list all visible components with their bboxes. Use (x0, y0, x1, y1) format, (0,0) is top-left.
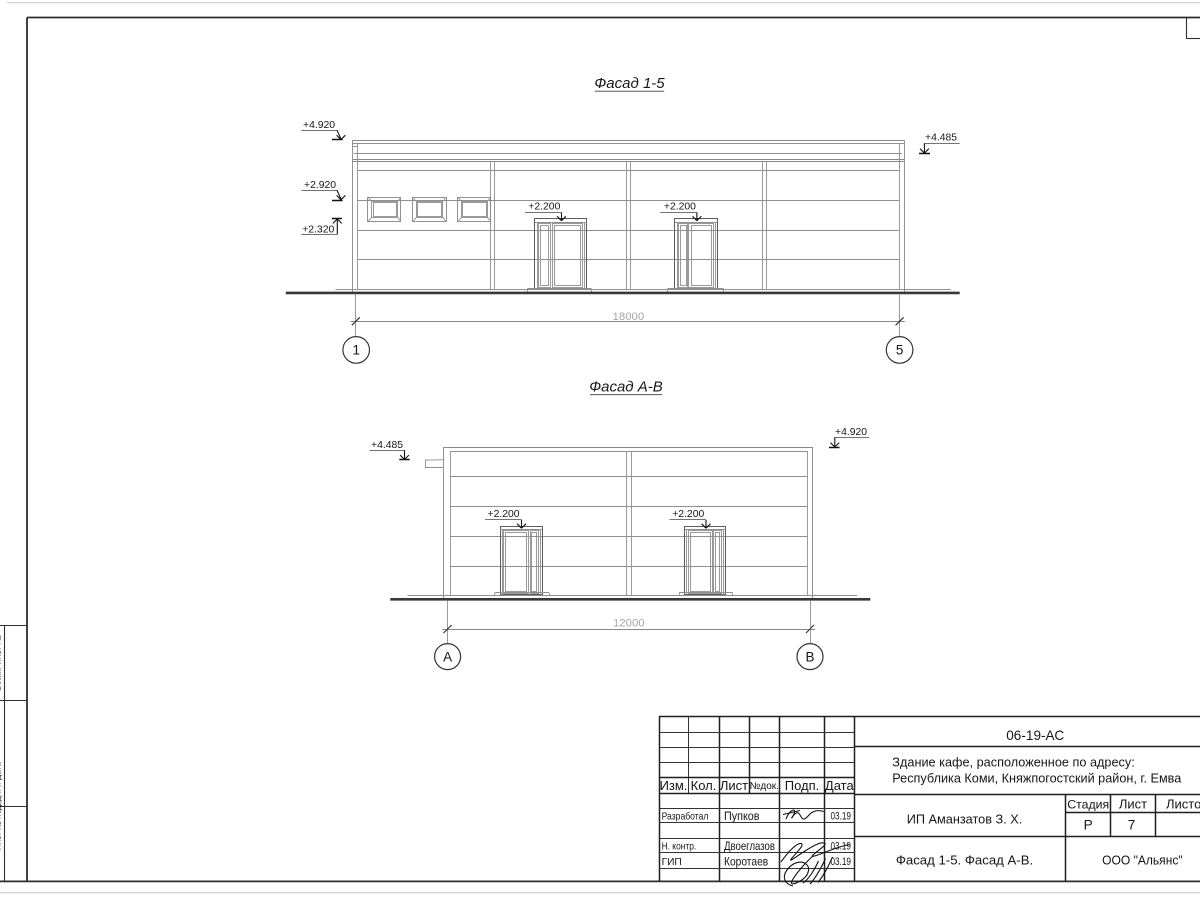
svg-text:Н. контр.: Н. контр. (662, 842, 697, 853)
svg-text:Кол.: Кол. (691, 778, 717, 793)
svg-text:+4.485: +4.485 (925, 133, 957, 144)
svg-text:+2.200: +2.200 (488, 509, 520, 520)
svg-text:03.19: 03.19 (831, 856, 852, 868)
svg-text:Изм.: Изм. (660, 778, 688, 793)
svg-text:Дата: Дата (825, 778, 855, 793)
svg-text:Фасад 1-5. Фасад А-В.: Фасад 1-5. Фасад А-В. (896, 853, 1033, 868)
svg-text:Стадия: Стадия (1067, 798, 1109, 812)
svg-text:5: 5 (896, 343, 904, 358)
svg-text:В: В (805, 649, 814, 664)
svg-text:Лист: Лист (720, 778, 748, 793)
svg-text:+4.485: +4.485 (371, 440, 403, 451)
svg-text:Лист: Лист (1119, 797, 1147, 812)
svg-text:03.19: 03.19 (831, 811, 852, 823)
svg-text:Р: Р (1084, 817, 1093, 832)
svg-text:06-19-АС: 06-19-АС (1006, 728, 1064, 743)
svg-text:+2.200: +2.200 (672, 509, 704, 520)
svg-text:Пупков: Пупков (724, 809, 760, 823)
svg-text:Фасад А-В: Фасад А-В (589, 379, 663, 396)
svg-text:А: А (443, 649, 452, 664)
svg-text:ИП Аманзатов З. Х.: ИП Аманзатов З. Х. (907, 812, 1023, 827)
svg-text:Разработал: Разработал (662, 811, 709, 823)
svg-text:Инв. № подл.: Инв. № подл. (0, 798, 2, 851)
svg-text:Двоеглазов: Двоеглазов (724, 839, 775, 853)
svg-text:Коротаев: Коротаев (724, 854, 768, 868)
svg-text:Республика Коми, Княжпогостски: Республика Коми, Княжпогостский район, г… (892, 771, 1182, 786)
svg-text:18000: 18000 (613, 311, 645, 323)
svg-text:+4.920: +4.920 (835, 427, 867, 438)
svg-text:+2.920: +2.920 (304, 180, 336, 191)
svg-text:12000: 12000 (613, 618, 645, 630)
svg-text:+2.200: +2.200 (664, 202, 696, 213)
svg-text:№док.: №док. (750, 781, 779, 792)
svg-text:Листов: Листов (1166, 797, 1200, 812)
svg-text:ГИП: ГИП (662, 857, 682, 868)
svg-text:Подп.: Подп. (785, 778, 820, 793)
svg-text:ООО "Альянс": ООО "Альянс" (1102, 853, 1183, 868)
svg-text:1: 1 (352, 343, 360, 358)
svg-text:7: 7 (1128, 817, 1136, 832)
svg-text:+2.320: +2.320 (302, 225, 334, 236)
svg-text:Фасад 1-5: Фасад 1-5 (594, 75, 665, 92)
svg-text:+2.200: +2.200 (528, 202, 560, 213)
svg-text:+4.920: +4.920 (303, 120, 335, 131)
svg-text:Здание кафе, расположенное по: Здание кафе, расположенное по адресу: (892, 755, 1135, 770)
svg-text:Взам. инв. №: Взам. инв. № (0, 635, 2, 691)
